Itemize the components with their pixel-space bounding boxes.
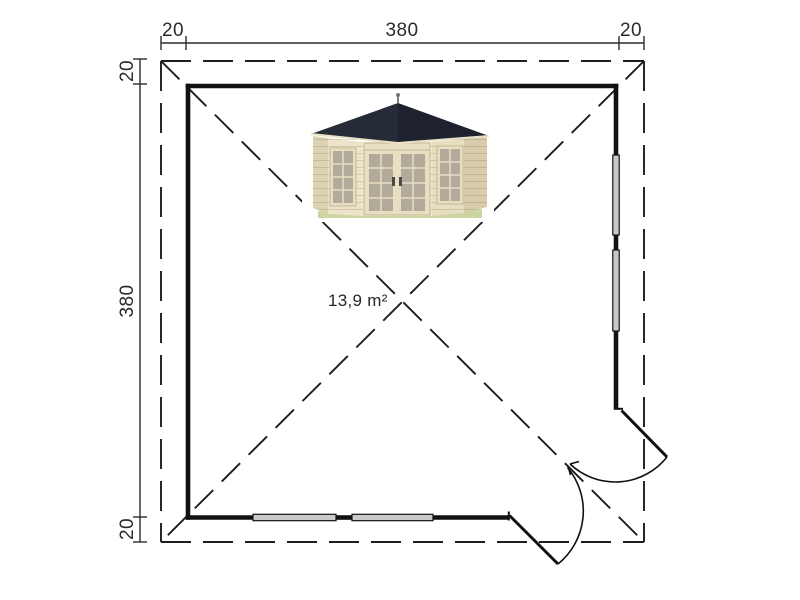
window-bottom-2: [352, 514, 433, 520]
dim-label-top-width: 380: [386, 20, 419, 42]
window-right-2: [613, 250, 619, 331]
house-right-window: [437, 146, 463, 204]
window-bottom-1: [253, 514, 336, 520]
door-handle: [399, 177, 402, 186]
house-left-window: [330, 148, 356, 206]
dim-label-top-right-overhang: 20: [620, 20, 642, 42]
dim-label-left-height: 380: [117, 285, 139, 318]
door-swing-arc: [558, 468, 583, 565]
house-photo: [302, 93, 494, 222]
area-label: 13,9 m²: [328, 291, 388, 311]
door-swing-arc: [570, 457, 667, 482]
window-right-1: [613, 155, 619, 235]
dim-label-top-left-overhang: 20: [162, 20, 184, 42]
door-handle: [392, 177, 395, 186]
house-double-door: [364, 143, 430, 215]
dim-label-left-top-overhang: 20: [117, 60, 139, 82]
dim-label-left-bottom-overhang: 20: [117, 518, 139, 540]
door-leaf-bottom: [510, 516, 559, 565]
